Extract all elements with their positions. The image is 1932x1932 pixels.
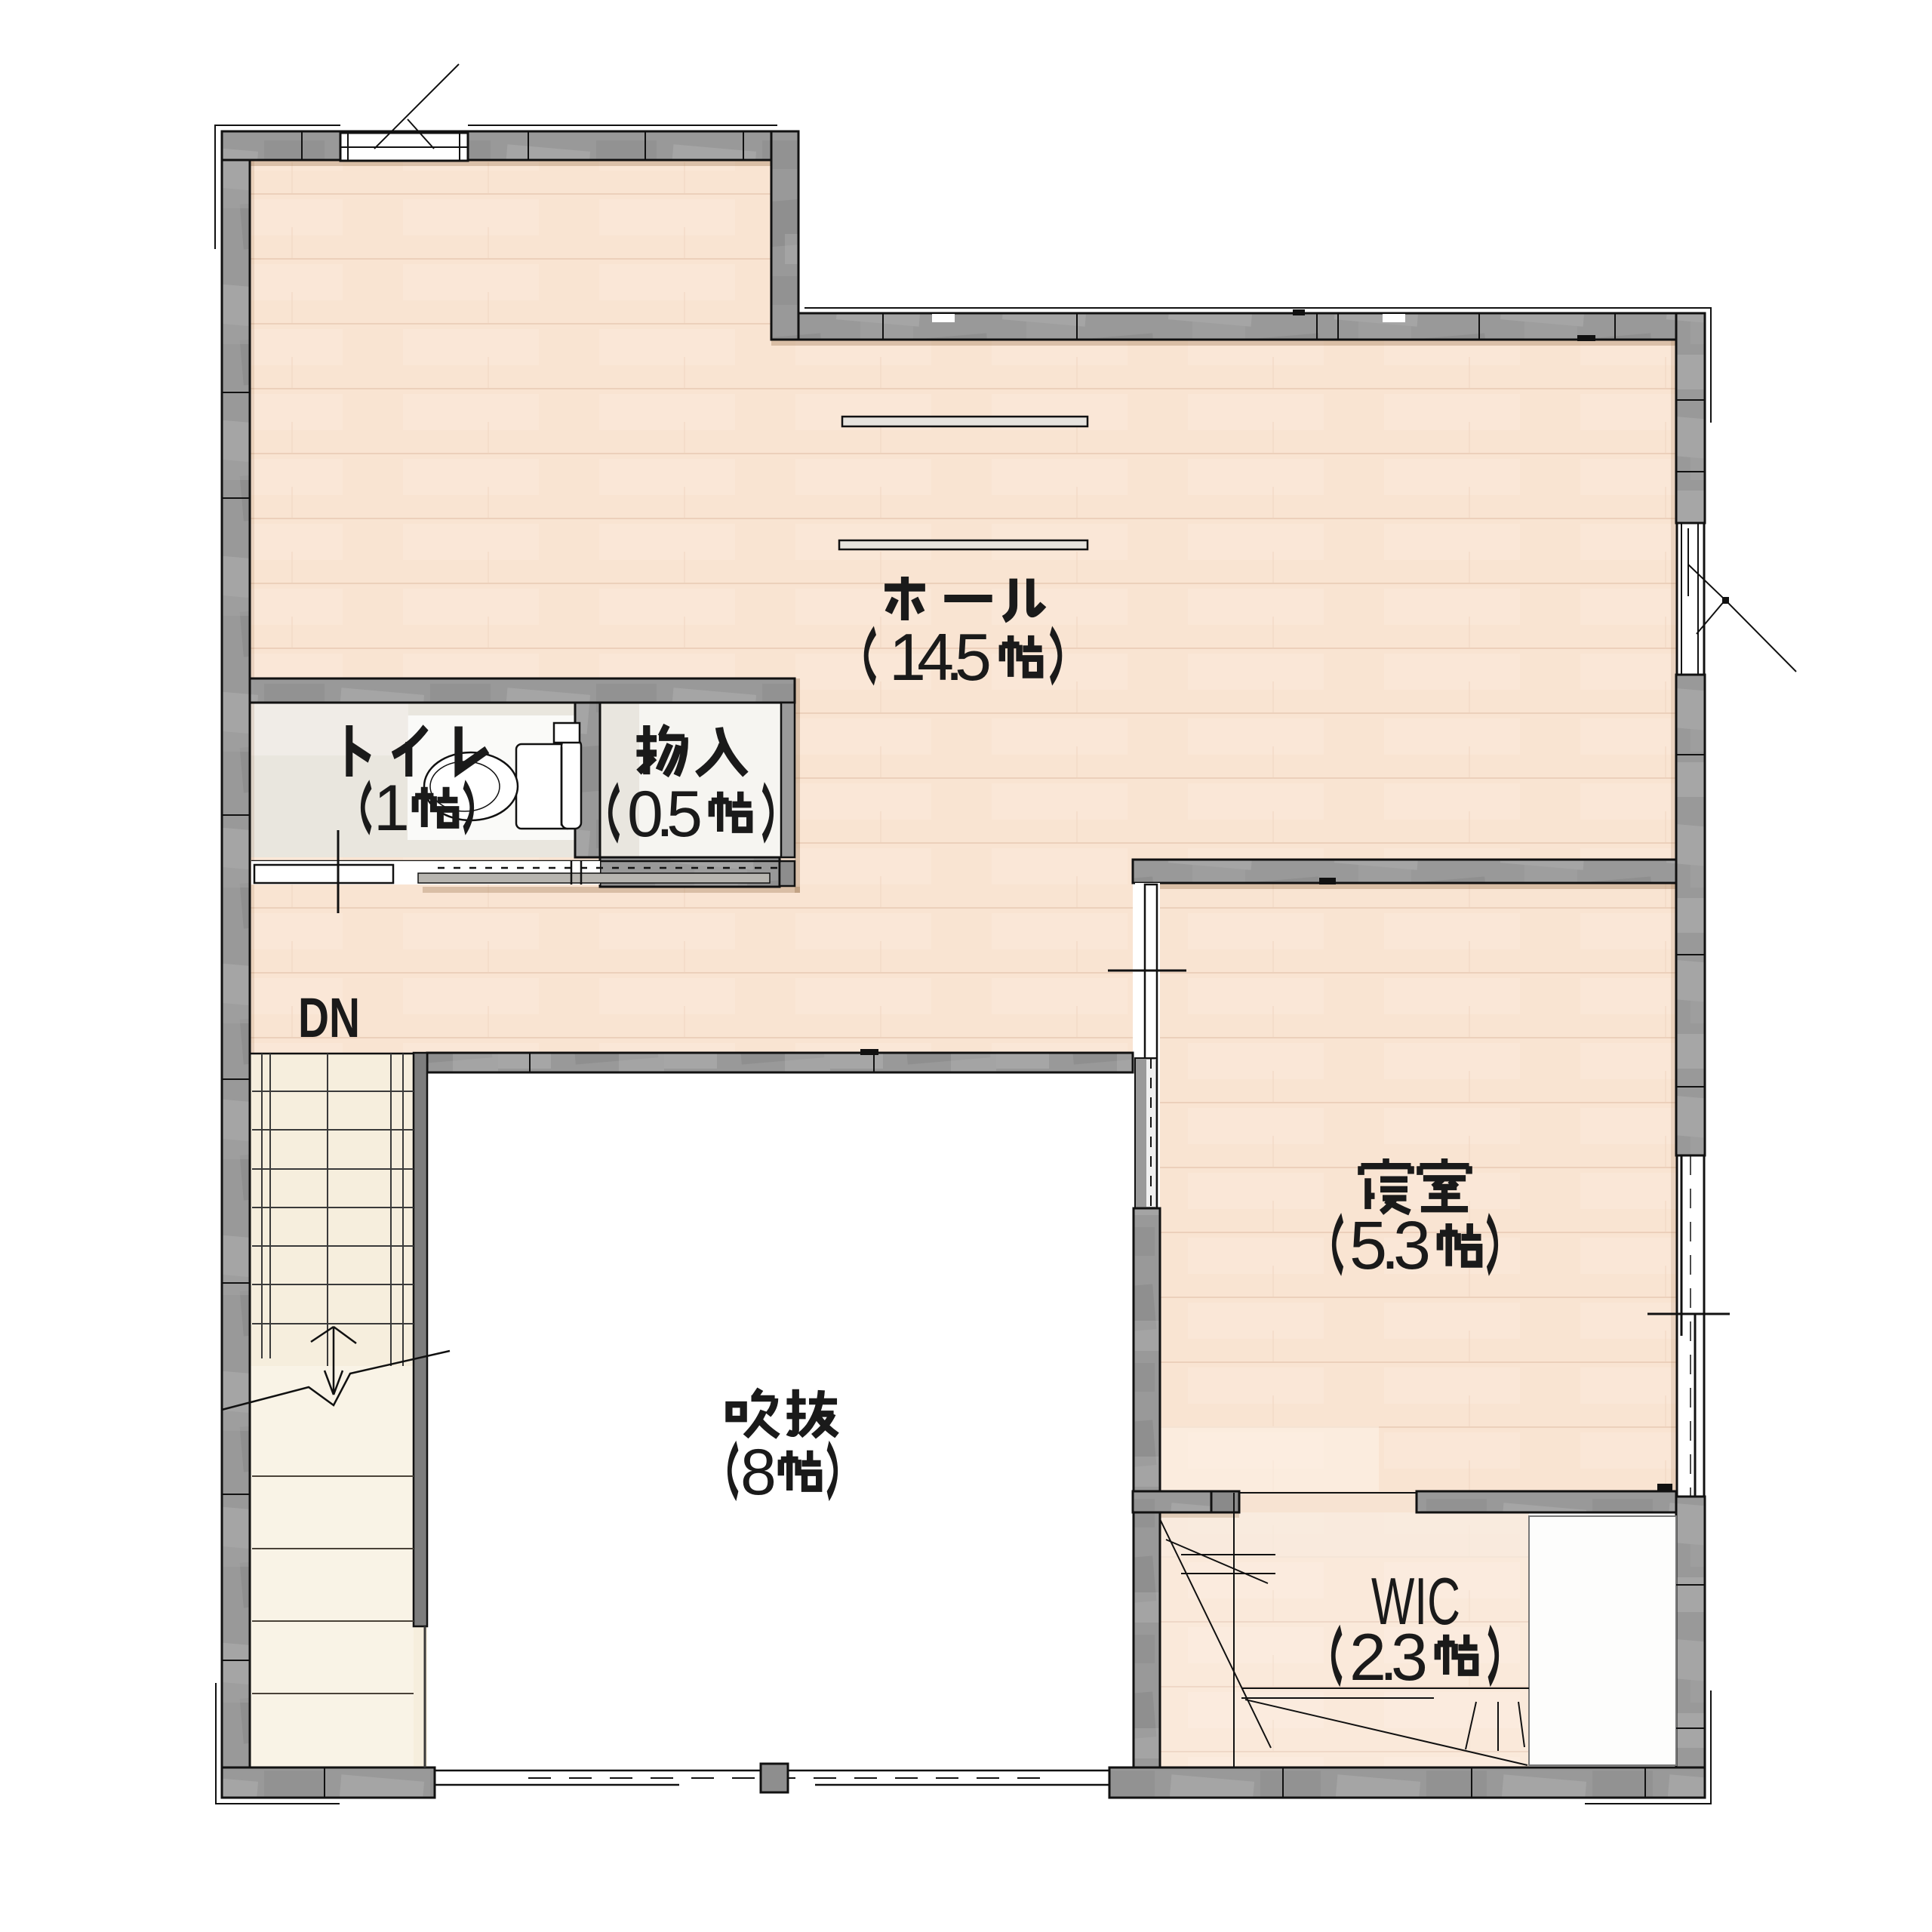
- svg-text:8: 8: [740, 1436, 777, 1509]
- svg-text:DN: DN: [298, 986, 360, 1049]
- svg-text:5.3: 5.3: [1349, 1208, 1431, 1284]
- svg-text:1: 1: [374, 772, 410, 844]
- svg-text:2.3: 2.3: [1349, 1620, 1428, 1694]
- svg-text:14.5: 14.5: [889, 620, 992, 694]
- svg-text:0.5: 0.5: [627, 778, 703, 851]
